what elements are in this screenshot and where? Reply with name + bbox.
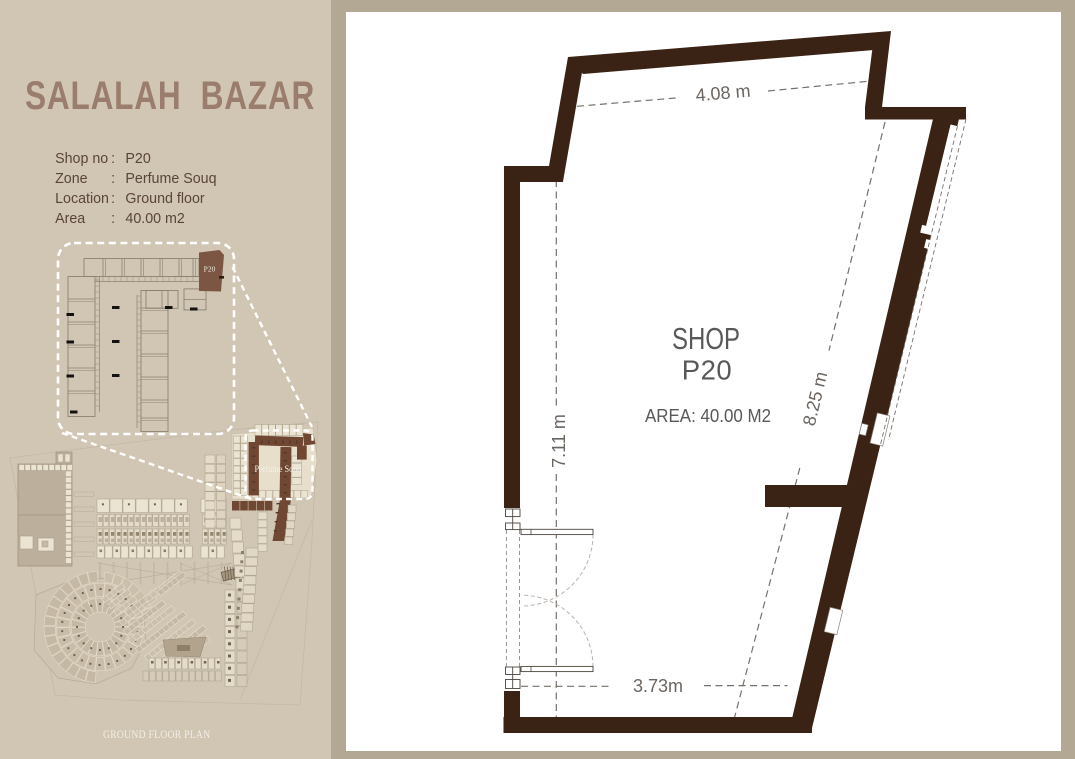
svg-text:8.25 m: 8.25 m	[799, 370, 831, 428]
svg-text:SHOP: SHOP	[672, 322, 740, 356]
svg-text:AREA: 40.00 M2: AREA: 40.00 M2	[645, 406, 771, 426]
svg-text:7.11 m: 7.11 m	[549, 414, 569, 468]
svg-text:3.73m: 3.73m	[633, 676, 683, 696]
svg-text:P20: P20	[682, 355, 732, 386]
svg-text:P20: P20	[204, 265, 216, 274]
svg-text:Perfume Souq: Perfume Souq	[255, 464, 302, 474]
svg-text:4.08 m: 4.08 m	[695, 81, 752, 106]
